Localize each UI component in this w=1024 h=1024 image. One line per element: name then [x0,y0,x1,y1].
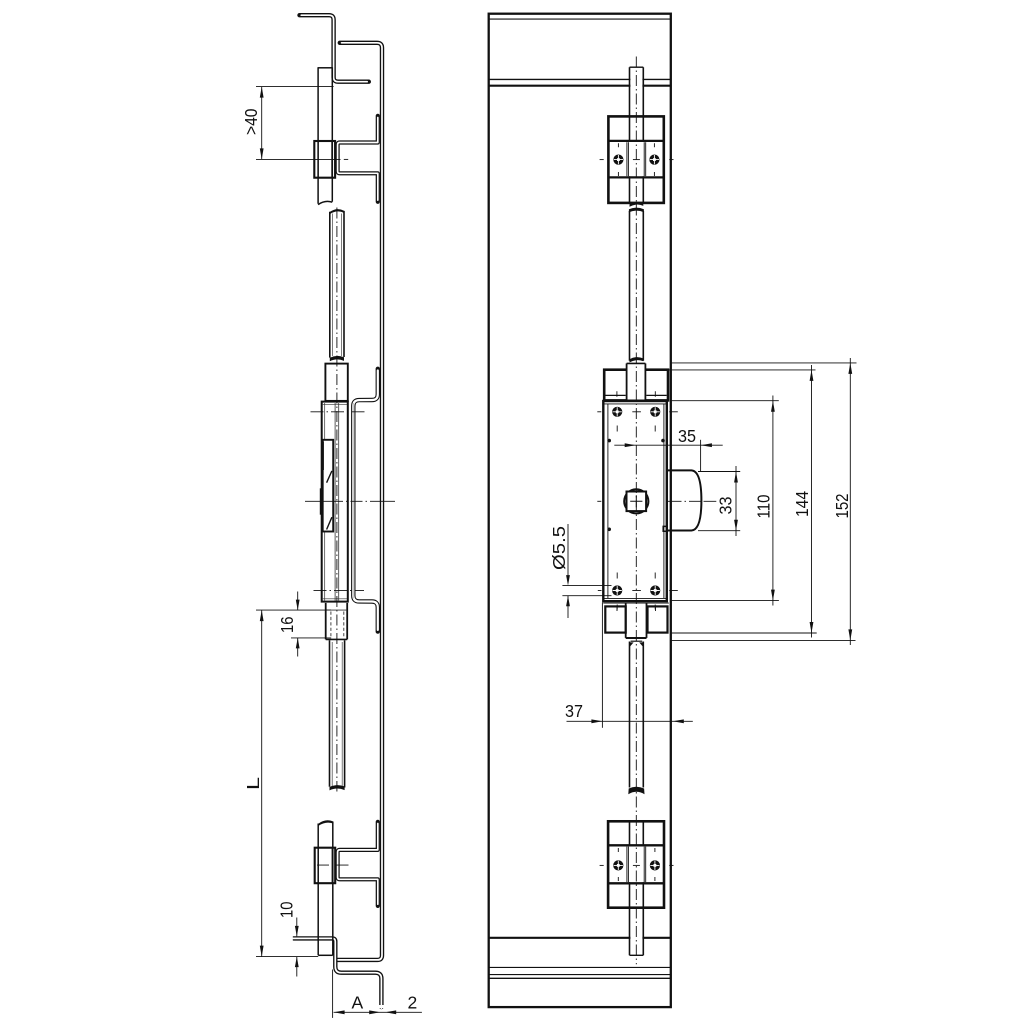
svg-text:Ø5.5: Ø5.5 [549,526,569,570]
svg-text:A: A [352,993,364,1013]
svg-text:110: 110 [754,494,774,518]
svg-text:144: 144 [792,491,812,517]
svg-text:33: 33 [716,497,736,515]
svg-text:>40: >40 [241,108,261,135]
svg-text:37: 37 [565,701,583,721]
svg-text:10: 10 [277,901,297,918]
svg-text:2: 2 [408,993,418,1013]
svg-text:152: 152 [832,494,852,519]
svg-text:16: 16 [277,617,297,634]
svg-text:35: 35 [678,426,696,446]
svg-text:L: L [243,777,263,790]
